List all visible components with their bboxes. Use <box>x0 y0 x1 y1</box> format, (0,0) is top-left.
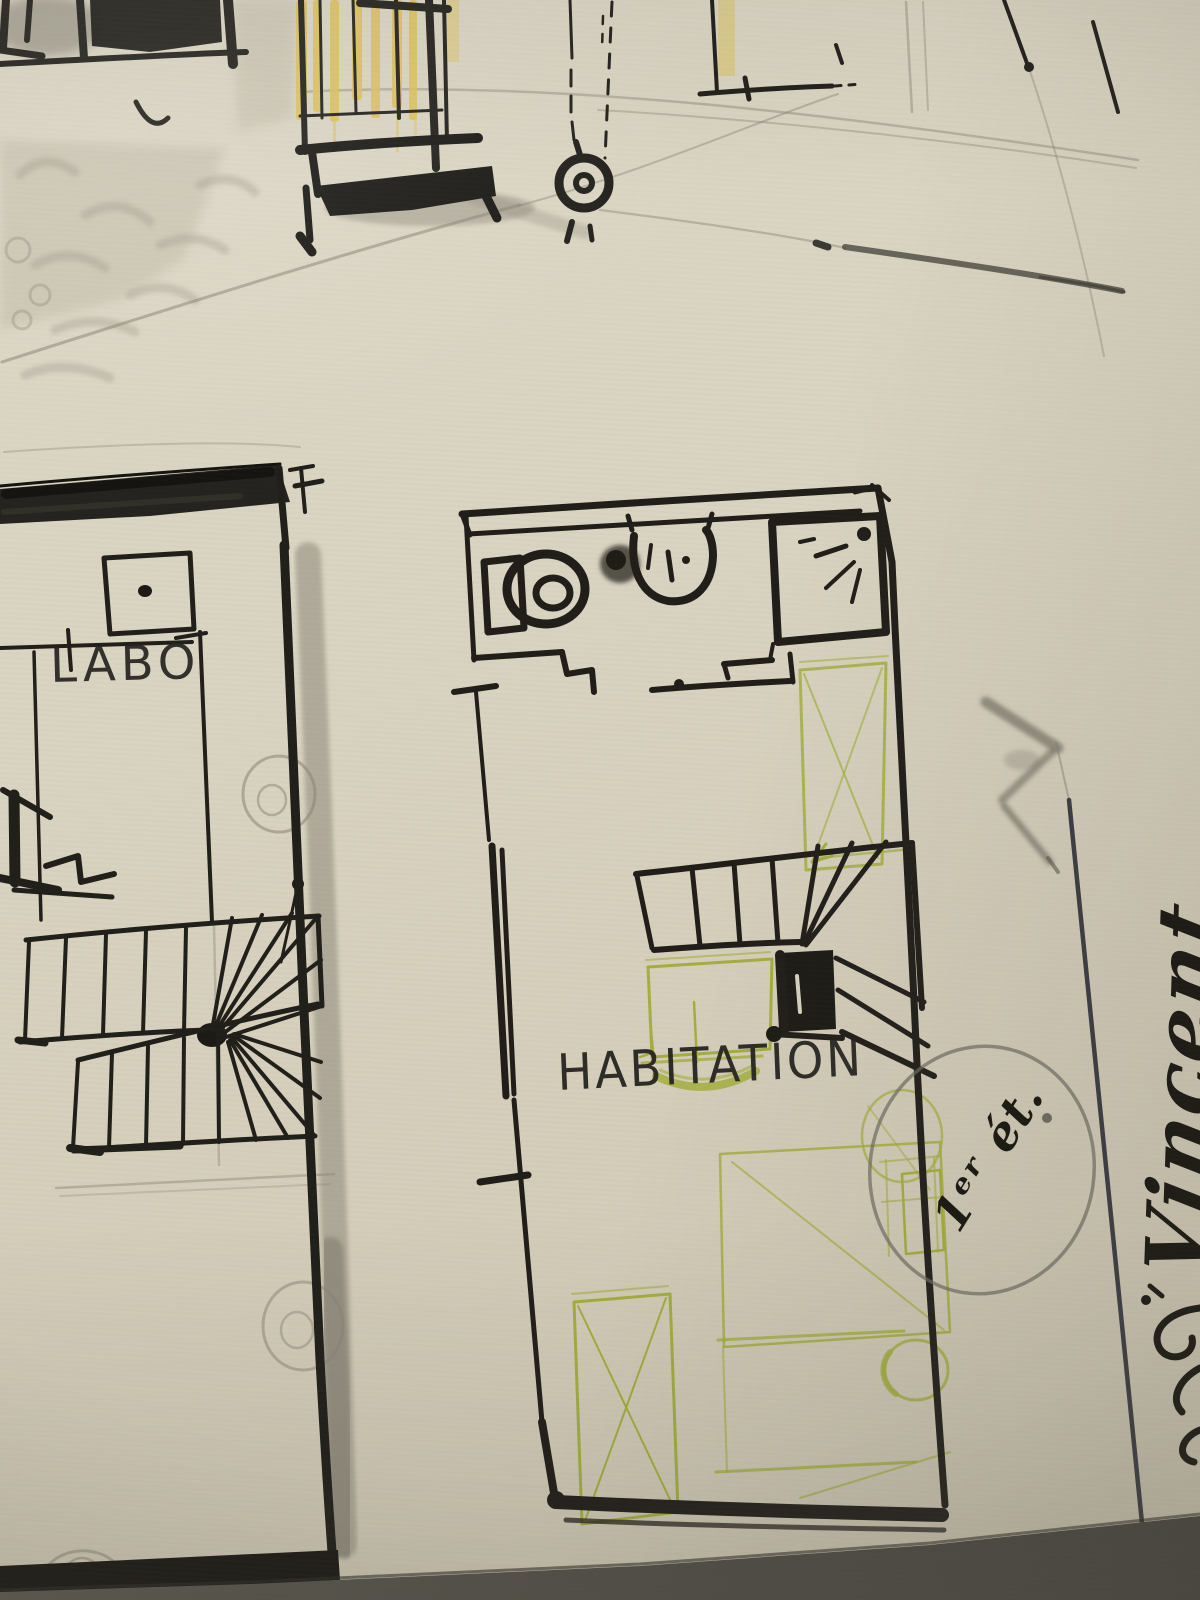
facade-sketch <box>0 0 1138 452</box>
ruled-margin-line <box>1056 742 1142 1523</box>
washbasin-icon <box>628 514 713 601</box>
sketch-photo: LABO HABITATION 1ᵉʳ ét. Vincent <box>0 0 1200 1600</box>
bed-sketch <box>716 1142 950 1498</box>
winder-staircase-icon <box>18 913 322 1152</box>
habitation-plan <box>454 485 950 1530</box>
balcony-icon <box>300 138 497 252</box>
bathroom-partition-wall <box>474 644 793 692</box>
sketch-drawing <box>0 0 1200 1600</box>
charcoal-smudge <box>986 702 1058 872</box>
signature-label: Vincent <box>1128 893 1200 1285</box>
table-edge <box>0 1514 1200 1600</box>
labo-room-label: LABO <box>49 634 201 694</box>
toilet-icon <box>484 554 585 632</box>
partial-handwriting <box>1141 1286 1200 1462</box>
shower-icon <box>772 516 886 642</box>
habitation-walls <box>454 485 945 1530</box>
wardrobe-sketch <box>572 1286 678 1524</box>
fixture-icon <box>104 553 194 634</box>
hanging-ring-icon <box>559 0 612 241</box>
